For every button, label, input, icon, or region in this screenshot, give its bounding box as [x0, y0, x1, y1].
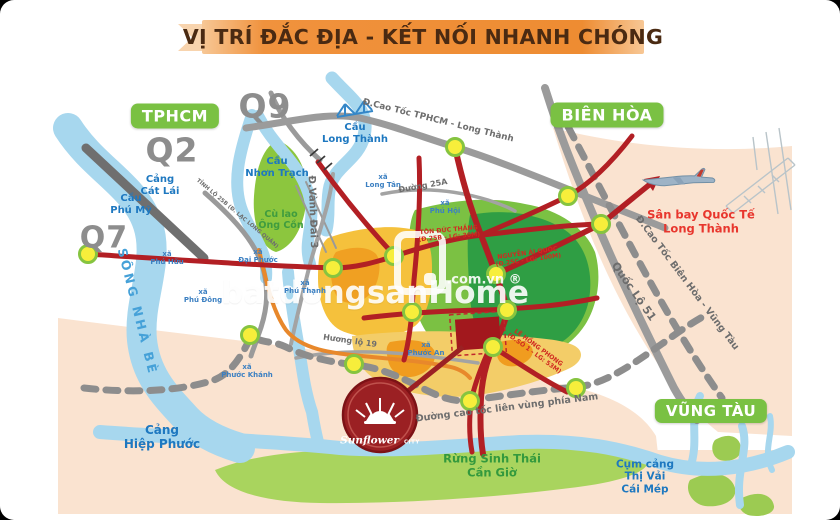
label-xa-dai-phuoc: xã Đại Phước: [238, 248, 277, 265]
junction-node-icon: [447, 139, 464, 156]
label-road-vanh-dai-3: Đ.Vành Đai 3: [305, 175, 319, 248]
badge-vung-tau: VŨNG TÀU: [655, 399, 767, 423]
logo-name: Sunflower: [340, 435, 399, 447]
junction-node-icon: [485, 339, 502, 356]
logo-suffix: CITY: [404, 440, 420, 446]
junction-node-icon: [346, 356, 363, 373]
label-district-q9: Q9: [238, 88, 291, 127]
label-xa-phu-thanh: xã Phú Thạnh: [284, 279, 326, 296]
label-cau-nhon-trach: Cầu Nhơn Trạch: [245, 156, 308, 180]
label-cum-cang-thi-vai-cai-mep: Cụm cảng Thị Vải Cái Mép: [616, 458, 674, 495]
label-district-q2: Q2: [145, 132, 198, 171]
badge-tphcm: TPHCM: [131, 104, 219, 129]
junction-node-icon: [593, 216, 610, 233]
label-xa-phu-huu: xã Phú Hữu: [150, 250, 183, 267]
junction-node-icon: [560, 188, 577, 205]
label-xa-phu-hoi: xã Phú Hội: [430, 199, 461, 216]
label-xa-phuoc-khanh: xã Phước Khánh: [221, 363, 273, 380]
label-cau-phu-my: Cầu Phú Mỹ: [110, 193, 152, 217]
screenshot: batdongsanHome .com.vn ® VỊ TRÍ ĐẮC ĐỊA …: [0, 0, 840, 520]
label-cu-lao-ong-con: Cù lao Ông Cồn: [258, 209, 303, 231]
label-cau-long-thanh: Cầu Long Thành: [322, 122, 388, 146]
sunflower-city-logo-text: Sunflower CITY: [340, 429, 420, 448]
junction-node-icon: [242, 327, 259, 344]
label-xa-phuoc-an: xã Phước An: [408, 341, 445, 358]
label-cang-hiep-phuoc: Cảng Hiệp Phước: [124, 423, 200, 451]
page-title: VỊ TRÍ ĐẮC ĐỊA - KẾT NỐI NHANH CHÓNG: [183, 25, 663, 49]
title-ribbon: VỊ TRÍ ĐẮC ĐỊA - KẾT NỐI NHANH CHÓNG: [202, 20, 644, 54]
badge-bien-hoa: BIÊN HÒA: [551, 103, 664, 128]
map-page: batdongsanHome .com.vn ® VỊ TRÍ ĐẮC ĐỊA …: [0, 0, 840, 520]
watermark-domain: .com.vn ®: [446, 273, 521, 288]
label-rung-sinh-thai-can-gio: Rừng Sinh Thái Cần Giờ: [443, 452, 541, 479]
label-xa-phu-dong: xã Phú Đông: [184, 288, 222, 305]
junction-node-icon: [325, 260, 342, 277]
label-xa-long-tan: xã Long Tân: [365, 173, 401, 190]
label-san-bay-long-thanh: Sân bay Quốc Tế Long Thành: [647, 208, 755, 235]
